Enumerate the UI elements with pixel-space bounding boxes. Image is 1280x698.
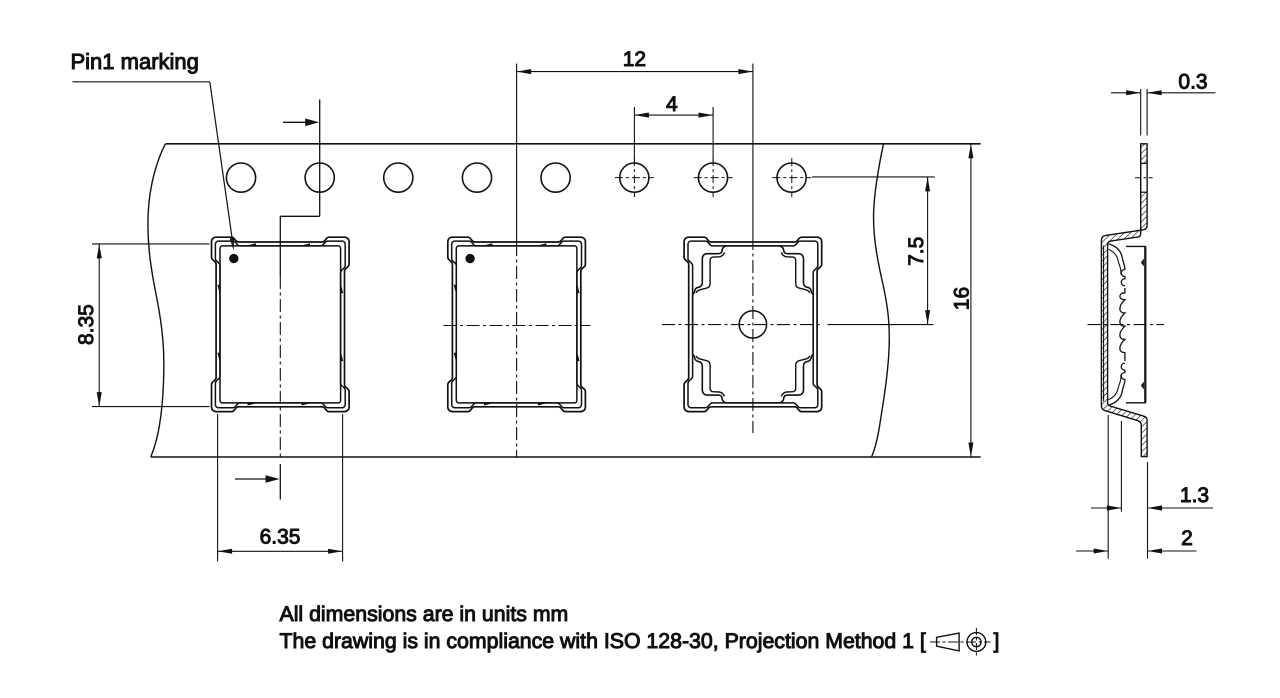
svg-text:6.35: 6.35 — [260, 526, 301, 549]
svg-text:The drawing is in compliance w: The drawing is in compliance with ISO 12… — [280, 629, 926, 653]
svg-text:1.3: 1.3 — [1180, 484, 1209, 507]
svg-text:4: 4 — [666, 93, 678, 116]
svg-text:0.3: 0.3 — [1178, 70, 1207, 93]
svg-text:2: 2 — [1181, 527, 1193, 550]
svg-text:]: ] — [994, 629, 1000, 653]
svg-text:7.5: 7.5 — [905, 237, 928, 266]
svg-text:16: 16 — [950, 287, 973, 310]
svg-text:8.35: 8.35 — [75, 304, 98, 345]
svg-text:12: 12 — [623, 48, 646, 71]
svg-text:Pin1 marking: Pin1 marking — [71, 49, 199, 74]
svg-text:All dimensions are in units mm: All dimensions are in units mm — [280, 602, 569, 626]
